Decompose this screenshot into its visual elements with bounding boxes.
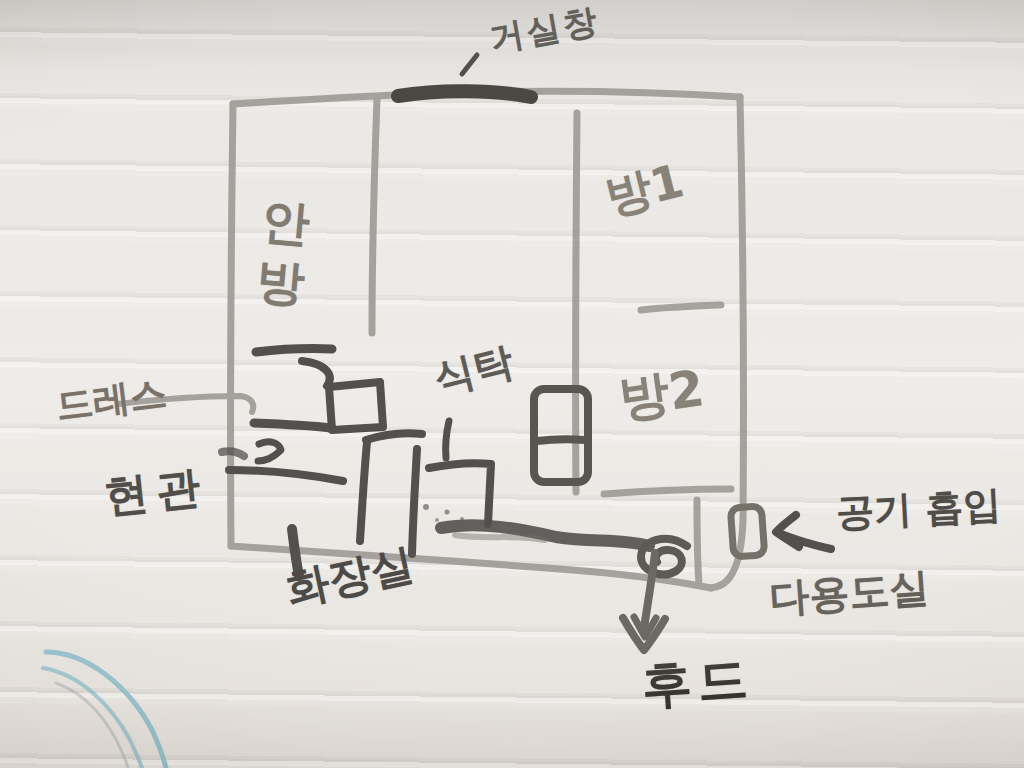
label-room2: 방2 (616, 362, 707, 425)
whiteboard-photo: 거실창 안방 방1 방2 식탁 드레스 현관 화장실 공기 흡입 다용도실 후드 (0, 0, 1024, 768)
wall-master-bedroom (372, 99, 377, 333)
ink-splatter (445, 510, 450, 515)
living-room-window-line (398, 91, 531, 97)
blue-scribbles (43, 652, 166, 768)
closet-bottom-line (254, 423, 331, 428)
wall-left (231, 104, 233, 546)
label-master-bedroom: 안방 (256, 164, 316, 288)
kitchen-counter-smudge (455, 535, 545, 540)
blue-arc-1 (46, 652, 166, 768)
bathroom-right-wall (412, 449, 417, 554)
closet-door-curve (302, 361, 330, 386)
wall-utility (697, 500, 699, 584)
entrance-door-line (229, 470, 343, 481)
vent-rectangle (730, 506, 764, 557)
closet-top-line (256, 349, 332, 352)
label-hood: 후드 (640, 652, 755, 712)
window-label-tick (462, 55, 477, 74)
ink-splatter (460, 517, 464, 521)
bathroom-left-wall (360, 442, 367, 541)
label-air-intake: 공기 흡입 (835, 485, 1002, 533)
wall-room2-bottom (604, 489, 731, 494)
label-entrance: 현관 (102, 463, 210, 519)
wall-room1-room2-divider (641, 305, 721, 310)
hood-spiral (641, 539, 687, 575)
gray-arc-faint (56, 683, 128, 768)
ink-splatter (435, 518, 439, 522)
dining-table-pointer (446, 421, 449, 458)
wall-right (711, 97, 743, 588)
entrance-chevron (258, 442, 281, 461)
air-intake-arrow-head (776, 515, 799, 547)
ink-splatter (423, 504, 429, 510)
cabinet-divider (537, 439, 585, 441)
kitchen-corner-wall (429, 463, 491, 524)
closet-box (329, 382, 383, 430)
bathroom-top-wall (366, 433, 422, 440)
entrance-smudge (222, 451, 244, 456)
wall-rooms-vertical (576, 113, 577, 492)
